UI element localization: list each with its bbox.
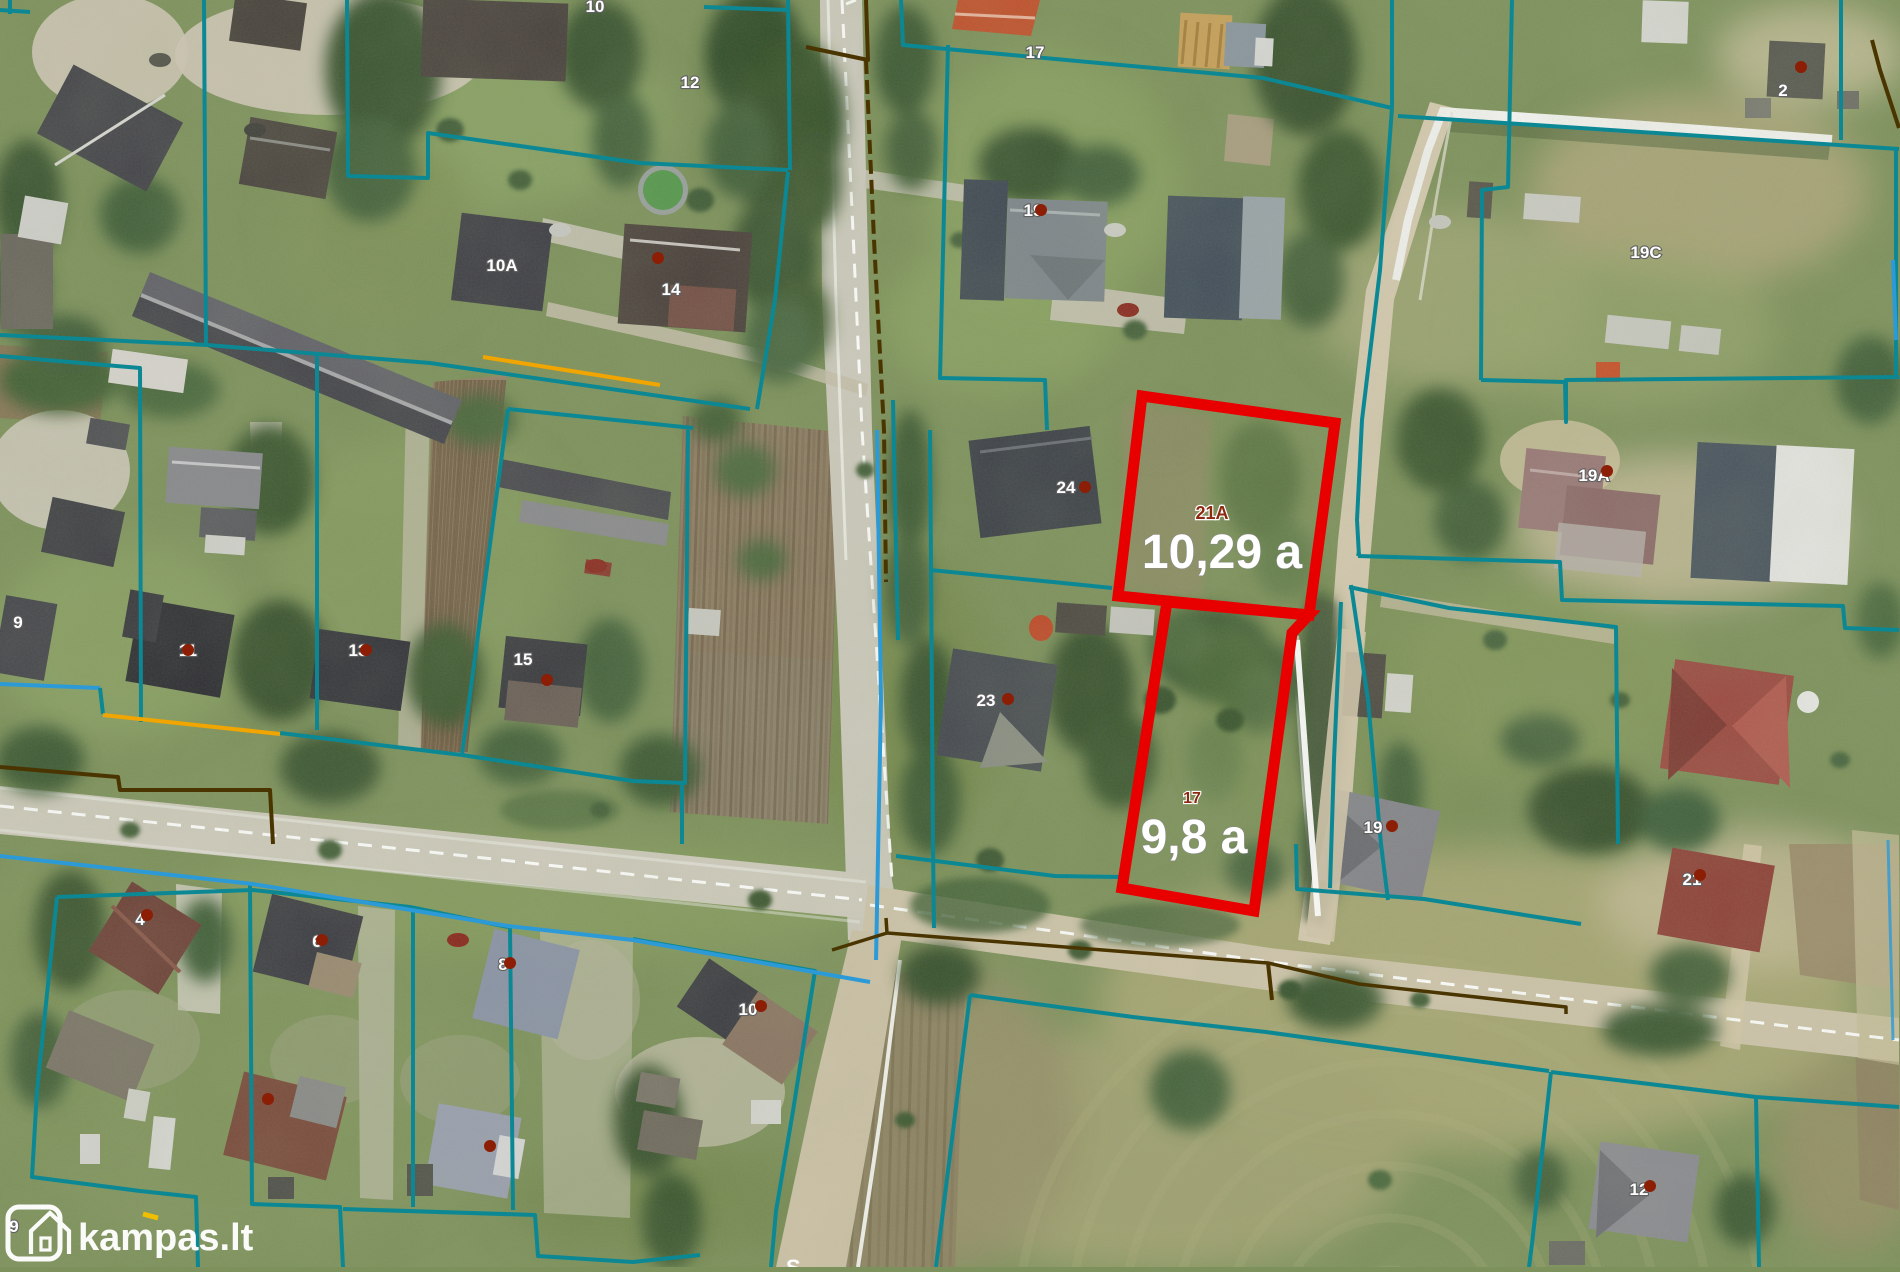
- svg-text:12: 12: [681, 73, 700, 92]
- svg-text:17: 17: [1026, 43, 1045, 62]
- svg-text:24: 24: [1057, 478, 1076, 497]
- svg-text:9,8 a: 9,8 a: [1141, 811, 1248, 864]
- svg-text:17: 17: [1183, 790, 1201, 807]
- svg-text:10,29 a: 10,29 a: [1142, 526, 1302, 579]
- svg-text:21A: 21A: [1195, 503, 1228, 523]
- svg-text:23: 23: [977, 691, 996, 710]
- svg-text:kampas.lt: kampas.lt: [78, 1217, 254, 1259]
- svg-text:9: 9: [9, 1217, 18, 1236]
- svg-text:10A: 10A: [486, 256, 517, 275]
- svg-text:15: 15: [514, 650, 533, 669]
- svg-text:19: 19: [1364, 818, 1383, 837]
- svg-text:10: 10: [586, 0, 605, 16]
- svg-text:2: 2: [1778, 81, 1787, 100]
- svg-text:S: S: [786, 1255, 801, 1267]
- svg-text:14: 14: [662, 280, 681, 299]
- svg-text:10: 10: [739, 1000, 758, 1019]
- svg-text:9: 9: [13, 613, 22, 632]
- svg-text:19C: 19C: [1630, 243, 1661, 262]
